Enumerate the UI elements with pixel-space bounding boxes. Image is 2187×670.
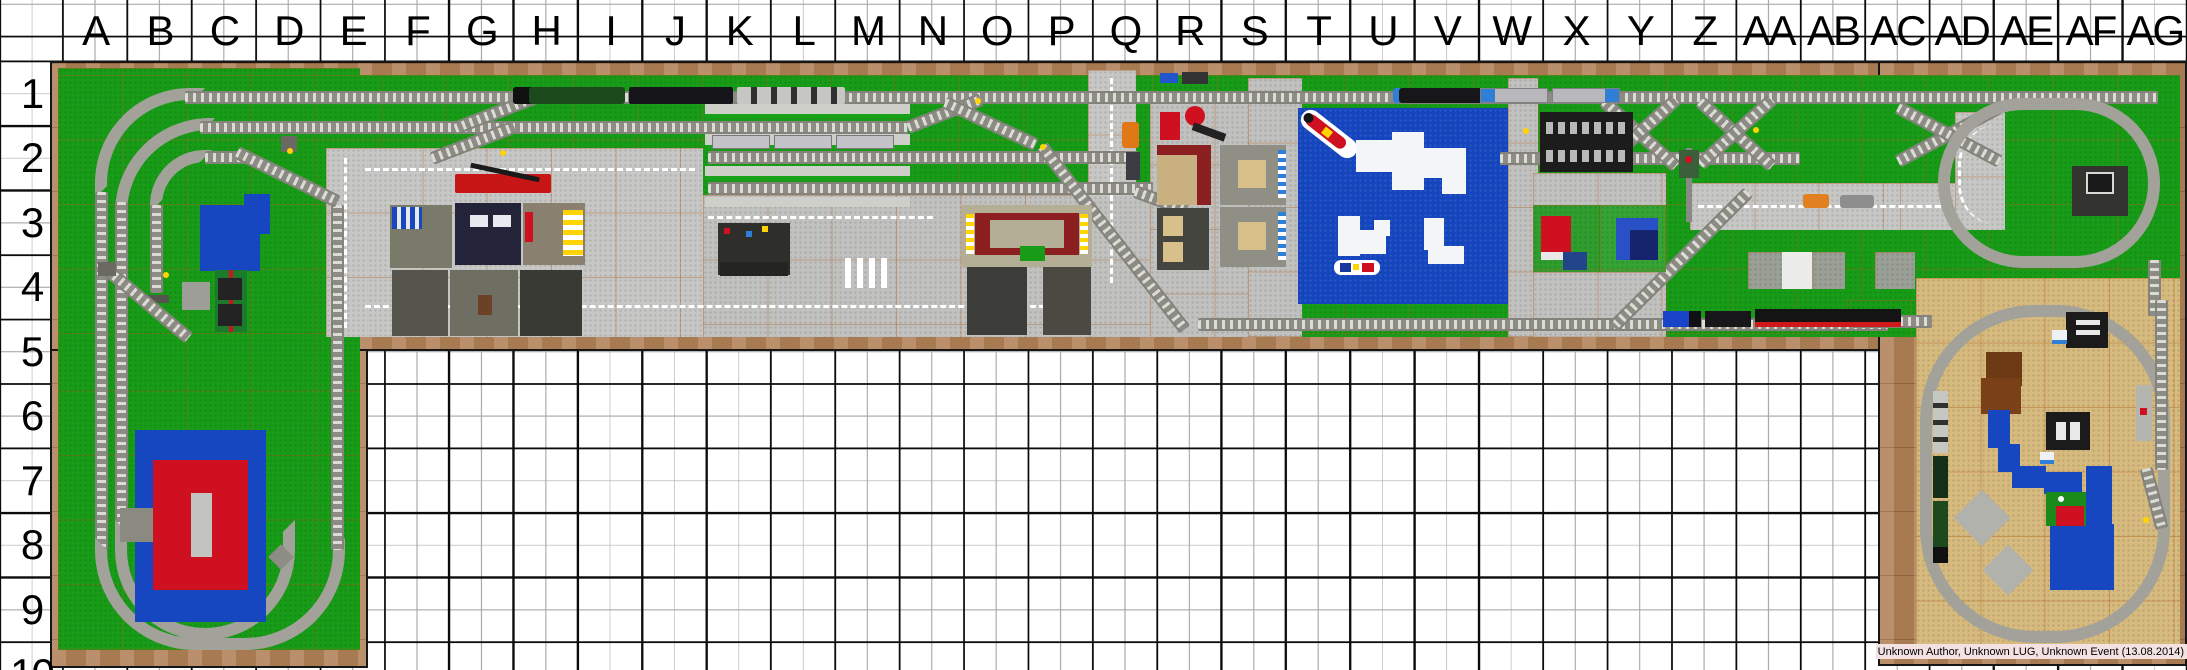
bld-cafe-awning	[563, 210, 583, 256]
column-label-L: L	[771, 0, 835, 62]
gray-train-car-1	[1480, 88, 1548, 103]
column-label-S: S	[1222, 0, 1286, 62]
road-line-city	[365, 168, 695, 171]
gray-car-east	[1840, 195, 1874, 208]
minifig-red	[724, 228, 730, 234]
stall-b-tan	[1238, 222, 1266, 250]
column-label-X: X	[1543, 0, 1607, 62]
column-label-AE: AE	[1994, 0, 2058, 62]
minifig-blue	[746, 231, 752, 237]
row-label-10: 10	[0, 642, 63, 670]
river-3	[2012, 466, 2046, 488]
switch-dot	[163, 272, 169, 278]
column-label-P: P	[1028, 0, 1092, 62]
row-label-8: 8	[0, 513, 63, 578]
hall-skylight	[191, 493, 212, 557]
ice-floe	[1442, 170, 1466, 194]
police-boat-stern	[1362, 263, 1374, 272]
track-mid-left	[115, 202, 128, 532]
river-4	[2044, 472, 2082, 494]
black-train	[1393, 88, 1483, 103]
platform-1	[705, 104, 910, 118]
steam-train-car	[737, 87, 845, 104]
platform-4	[705, 197, 910, 207]
river-1	[1988, 410, 2010, 448]
switch-dot	[1040, 144, 1046, 150]
pond-left-2	[244, 194, 270, 234]
orange-car-east	[1803, 194, 1829, 208]
column-label-B: B	[127, 0, 191, 62]
bld-cafe-red	[525, 212, 533, 242]
road-line-d	[344, 158, 347, 328]
shed-tan-b-bars2	[2070, 422, 2080, 440]
row-label-7: 7	[0, 449, 63, 514]
shed-doors-top	[1546, 122, 1628, 134]
crosswalk	[845, 258, 891, 288]
signal-gantry-light	[1685, 156, 1692, 163]
column-label-Q: Q	[1093, 0, 1157, 62]
column-label-D: D	[256, 0, 320, 62]
column-label-G: G	[449, 0, 513, 62]
solar-panel	[1563, 252, 1587, 270]
column-label-T: T	[1286, 0, 1350, 62]
tan-train-loco	[1933, 501, 1948, 563]
parked-van-blue	[1160, 73, 1178, 83]
level-crossing-hut-a	[218, 278, 242, 300]
column-label-AA: AA	[1736, 0, 1800, 62]
column-label-AD: AD	[1930, 0, 1994, 62]
yard-platform-signal	[2140, 408, 2147, 415]
column-label-R: R	[1157, 0, 1221, 62]
stall-a-tan	[1238, 160, 1266, 188]
column-label-H: H	[514, 0, 578, 62]
track-inner-stub	[150, 205, 163, 293]
column-label-N: N	[900, 0, 964, 62]
police-boat-dot	[1353, 264, 1359, 270]
layout-plan-canvas: Unknown Author, Unknown LUG, Unknown Eve…	[0, 0, 2187, 670]
column-label-W: W	[1479, 0, 1543, 62]
bld-townhouse-door	[478, 295, 492, 315]
row-label-5: 5	[0, 320, 63, 385]
market-awning-r	[1080, 214, 1088, 254]
switch-box-left	[98, 262, 116, 276]
switch-dot	[1753, 127, 1759, 133]
cart-a	[2052, 330, 2067, 344]
column-label-AB: AB	[1801, 0, 1865, 62]
column-label-E: E	[320, 0, 384, 62]
fire-truck-small	[1160, 112, 1180, 140]
column-label-C: C	[192, 0, 256, 62]
track-station-3	[708, 151, 1138, 164]
track-mainline-top	[185, 91, 2158, 104]
bld-af-core	[2086, 172, 2114, 194]
row-label-9: 9	[0, 578, 63, 643]
column-label-U: U	[1350, 0, 1414, 62]
bld-garage-a	[967, 267, 1027, 335]
attribution-bar: Unknown Author, Unknown LUG, Unknown Eve…	[1876, 644, 2187, 659]
parked-truck-dark	[1182, 72, 1208, 84]
switch-dot	[1523, 128, 1529, 134]
column-label-AF: AF	[2058, 0, 2122, 62]
column-label-K: K	[707, 0, 771, 62]
dark-truck	[1126, 152, 1140, 180]
bld-r2	[1157, 145, 1211, 205]
road-line-plaza	[708, 216, 933, 219]
shed-doors-bottom	[1546, 150, 1628, 162]
train-shed	[1540, 112, 1633, 172]
bld-garage-b	[1043, 267, 1091, 335]
platform-3	[705, 166, 910, 180]
market-hall-court	[990, 220, 1064, 248]
mountain-b	[1981, 378, 2021, 414]
column-label-V: V	[1415, 0, 1479, 62]
police-boat	[1334, 260, 1380, 275]
tan-train-car	[1933, 391, 1948, 453]
black-loco	[1705, 311, 1751, 327]
shed-tan-b-bars	[2056, 422, 2066, 440]
steam-train-loco	[513, 87, 625, 104]
shed-tan-a-bars	[2076, 320, 2100, 336]
blue-loco	[1663, 311, 1701, 327]
pond-tan	[2050, 524, 2114, 590]
minifig-yellow	[762, 226, 768, 232]
shed-plaza	[1533, 173, 1666, 205]
river-5	[2086, 466, 2112, 526]
bld-police-blue	[392, 207, 422, 229]
column-label-J: J	[642, 0, 706, 62]
bld-museum-roof-a	[470, 215, 488, 227]
column-label-AC: AC	[1865, 0, 1929, 62]
bld-dark	[520, 270, 582, 336]
track-tan-siding	[2155, 300, 2168, 470]
bld-corner	[392, 270, 448, 336]
row-label-4: 4	[0, 255, 63, 320]
switch-dot	[287, 148, 293, 154]
passenger-car-1	[712, 135, 770, 149]
row-label-1: 1	[0, 62, 63, 127]
flower-garden-red	[2056, 506, 2084, 526]
track-line2	[200, 121, 908, 134]
orange-van	[1122, 122, 1139, 148]
bld-museum-roof-b	[493, 215, 511, 227]
market-awning-l	[966, 214, 974, 254]
signal-gantry-head	[1679, 150, 1699, 178]
row-label-2: 2	[0, 126, 63, 191]
flower-dot	[2058, 496, 2064, 502]
column-label-M: M	[835, 0, 899, 62]
steam-train-tender	[629, 87, 733, 104]
switch-dot	[975, 98, 981, 104]
ice-floe	[1374, 220, 1390, 236]
gray-train-car-2	[1552, 88, 1620, 103]
market-green	[1020, 246, 1045, 261]
level-crossing-hut-b	[218, 304, 242, 326]
shed-tan-b	[2046, 412, 2090, 450]
parking-b	[1875, 252, 1915, 289]
track-outer-left	[95, 192, 108, 550]
column-label-O: O	[964, 0, 1028, 62]
passenger-car-3	[836, 135, 894, 149]
column-label-AG: AG	[2123, 0, 2187, 62]
row-label-3: 3	[0, 191, 63, 256]
red-freight-train	[1755, 309, 1901, 327]
blue-house	[1616, 218, 1658, 260]
parking-a-white	[1782, 252, 1812, 289]
ice-floe	[1356, 140, 1396, 172]
switch-dot	[500, 150, 506, 156]
stall-a-awning	[1278, 150, 1286, 198]
bld-museum	[455, 203, 521, 265]
bld-r3-tan-b	[1163, 242, 1183, 262]
passenger-car-2	[774, 135, 832, 149]
column-label-A: A	[63, 0, 127, 62]
track-outer-right	[331, 205, 344, 550]
column-label-Z: Z	[1672, 0, 1736, 62]
police-boat-cabin	[1340, 263, 1351, 272]
stall-b-awning	[1278, 212, 1286, 260]
station-annex	[720, 262, 788, 276]
column-label-F: F	[385, 0, 449, 62]
column-label-Y: Y	[1608, 0, 1672, 62]
gray-plate-left	[182, 282, 210, 310]
cart-b	[2040, 452, 2054, 464]
tan-train-tender	[1933, 456, 1948, 498]
hall-annex	[120, 508, 153, 542]
row-label-6: 6	[0, 384, 63, 449]
bld-r3-tan-a	[1163, 216, 1183, 236]
ice-floe	[1428, 246, 1464, 264]
switch-dot	[2143, 517, 2149, 523]
column-label-I: I	[578, 0, 642, 62]
